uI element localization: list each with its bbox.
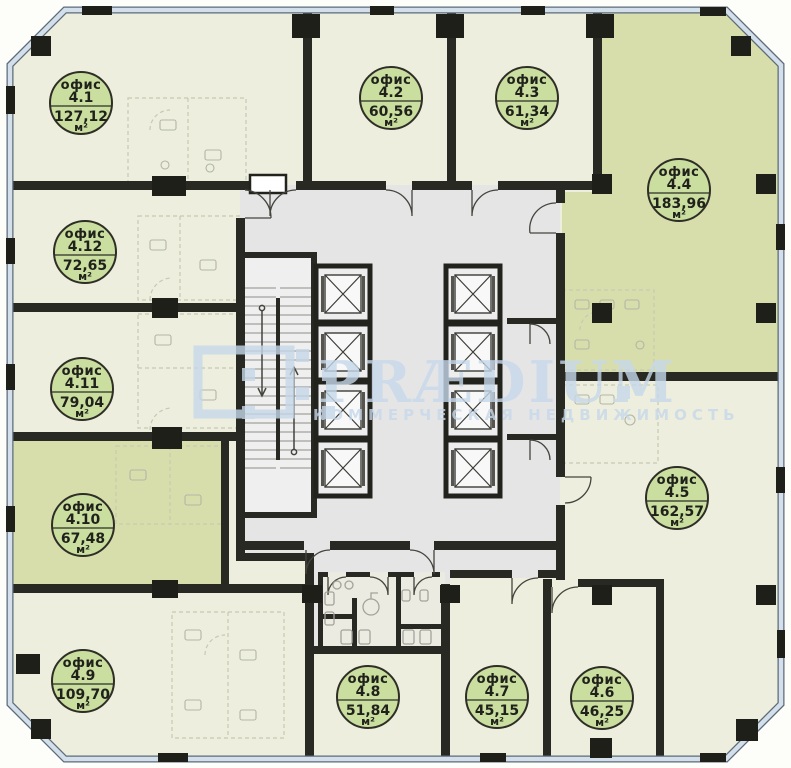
floor-plan-canvas: PRÆDIUM КОММЕРЧЕСКАЯ НЕДВИЖИМОСТЬ офис 4… [0, 0, 791, 768]
unit-badge-4-7[interactable]: офис 4.7 45,15 м² [466, 666, 528, 728]
unit-id: 4.6 [590, 685, 615, 701]
unit-badge-4-11[interactable]: офис 4.11 79,04 м² [51, 358, 113, 420]
unit-badge-4-6[interactable]: офис 4.6 46,25 м² [571, 667, 633, 729]
unit-id: 4.12 [68, 239, 103, 255]
unit-badge-4-4[interactable]: офис 4.4 183,96 м² [648, 159, 710, 221]
unit-area-unit: м² [75, 407, 89, 420]
unit-area-unit: м² [74, 121, 88, 134]
unit-area-unit: м² [361, 715, 375, 728]
unit-badge-4-5[interactable]: офис 4.5 162,57 м² [646, 467, 708, 529]
unit-badge-4-1[interactable]: офис 4.1 127,12 м² [50, 72, 112, 134]
unit-area-unit: м² [78, 270, 92, 283]
unit-id: 4.3 [515, 85, 540, 101]
unit-badge-4-3[interactable]: офис 4.3 61,34 м² [496, 67, 558, 129]
unit-id: 4.7 [485, 684, 510, 700]
watermark-subtitle: КОММЕРЧЕСКАЯ НЕДВИЖИМОСТЬ [313, 406, 740, 424]
unit-area-unit: м² [384, 116, 398, 129]
unit-area-unit: м² [672, 208, 686, 221]
unit-area-unit: м² [520, 116, 534, 129]
unit-id: 4.11 [65, 376, 100, 392]
unit-area-unit: м² [76, 543, 90, 556]
unit-id: 4.1 [69, 90, 94, 106]
unit-badge-4-9[interactable]: офис 4.9 109,70 м² [52, 650, 114, 712]
room-4-10 [12, 439, 225, 588]
unit-badge-4-12[interactable]: офис 4.12 72,65 м² [54, 221, 116, 283]
unit-badge-4-10[interactable]: офис 4.10 67,48 м² [52, 494, 114, 556]
floor-plan-page: PRÆDIUM КОММЕРЧЕСКАЯ НЕДВИЖИМОСТЬ офис 4… [0, 0, 791, 768]
unit-id: 4.2 [379, 85, 404, 101]
unit-id: 4.10 [66, 512, 101, 528]
unit-area-unit: м² [490, 715, 504, 728]
unit-badge-4-8[interactable]: офис 4.8 51,84 м² [337, 666, 399, 728]
unit-id: 4.9 [71, 668, 96, 684]
unit-id: 4.5 [665, 485, 690, 501]
core-wc-block [318, 572, 445, 652]
unit-area-unit: м² [670, 516, 684, 529]
duct-shaft [250, 175, 286, 193]
unit-area-unit: м² [76, 699, 90, 712]
unit-area-unit: м² [595, 716, 609, 729]
unit-id: 4.8 [356, 684, 381, 700]
unit-id: 4.4 [667, 177, 692, 193]
unit-badge-4-2[interactable]: офис 4.2 60,56 м² [360, 67, 422, 129]
